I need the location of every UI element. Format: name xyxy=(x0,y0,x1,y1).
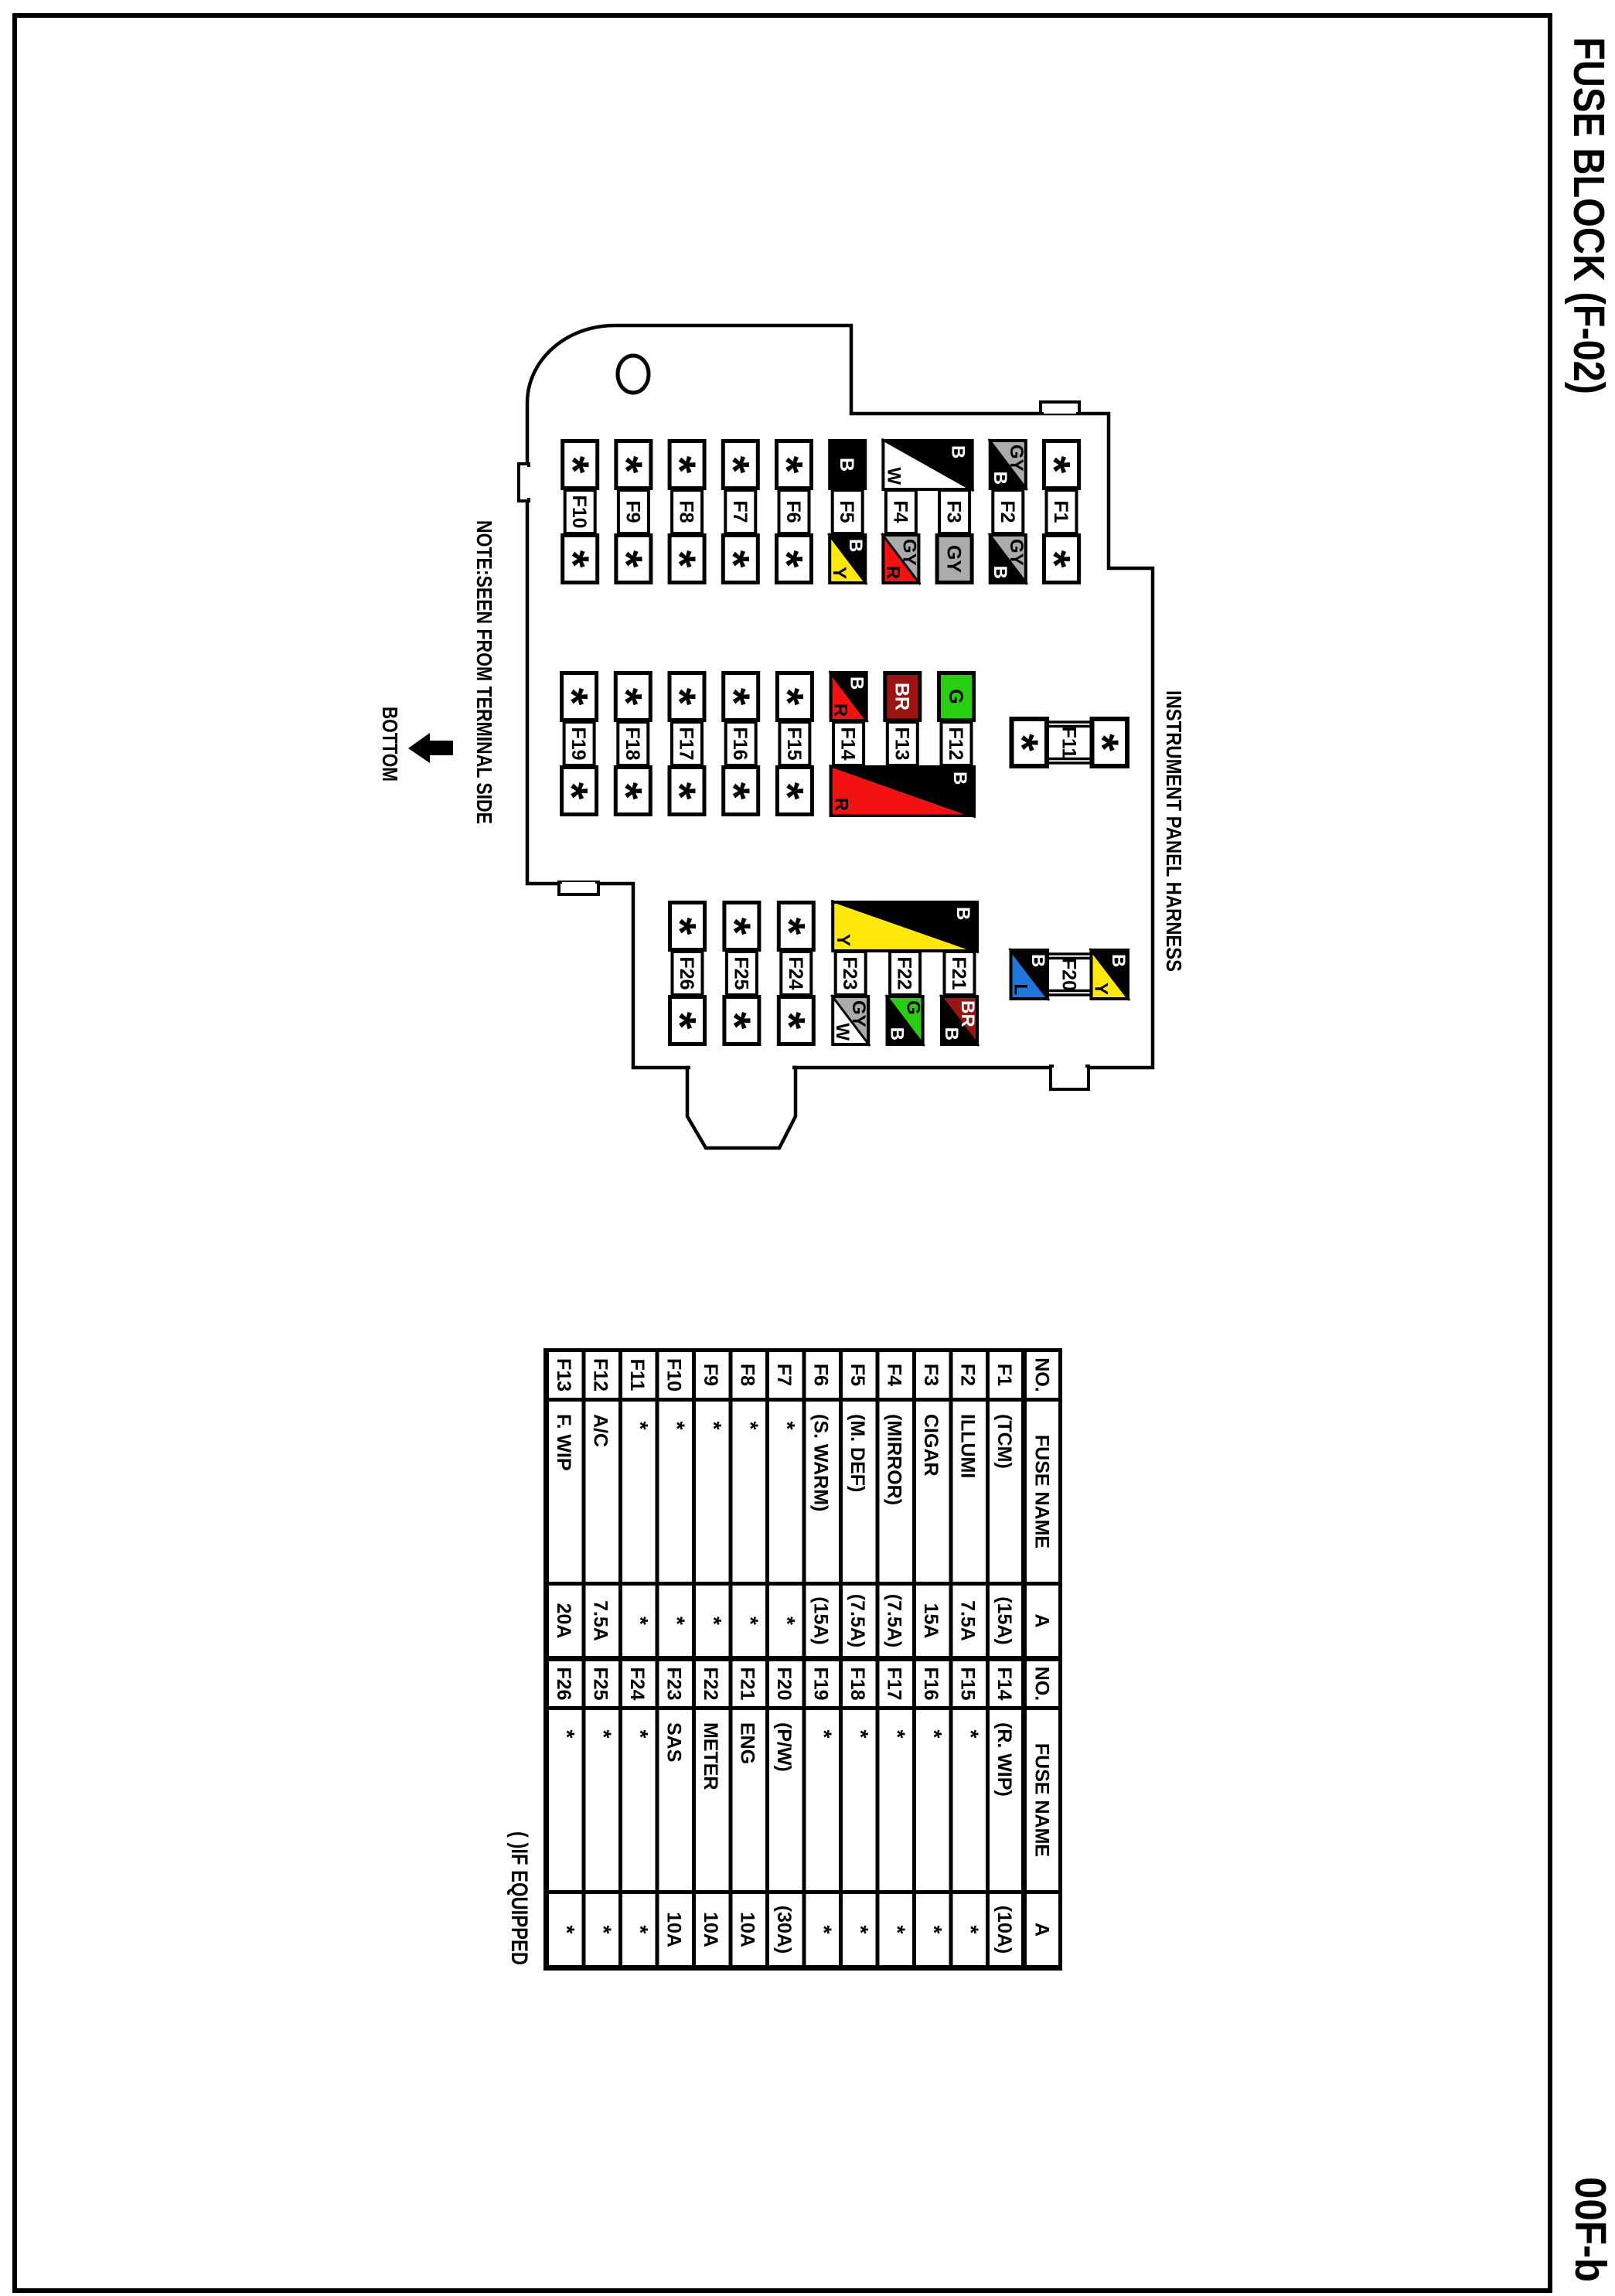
svg-text:F22: F22 xyxy=(700,1667,721,1700)
svg-text:F3: F3 xyxy=(943,500,965,523)
svg-text:*: * xyxy=(555,1926,579,1934)
svg-text:Y: Y xyxy=(829,567,850,579)
svg-text:G: G xyxy=(945,689,966,703)
svg-text:*: * xyxy=(762,550,812,568)
svg-text:*: * xyxy=(812,1926,836,1934)
svg-text:F25: F25 xyxy=(730,956,751,990)
svg-text:F23: F23 xyxy=(839,956,860,990)
svg-text:B: B xyxy=(887,1027,908,1041)
svg-text:F18: F18 xyxy=(622,727,643,760)
svg-text:*: * xyxy=(849,1730,873,1739)
svg-text:*: * xyxy=(775,1616,799,1625)
svg-text:*: * xyxy=(763,918,813,935)
svg-text:*: * xyxy=(654,456,704,474)
svg-text:*: * xyxy=(591,1730,615,1739)
svg-text:F21: F21 xyxy=(948,956,969,990)
svg-text:*: * xyxy=(708,782,758,800)
svg-text:F18: F18 xyxy=(847,1667,868,1700)
svg-text:(TCM): (TCM) xyxy=(993,1414,1015,1469)
svg-text:FUSE NAME: FUSE NAME xyxy=(1031,1743,1053,1857)
svg-text:(10A): (10A) xyxy=(993,1906,1015,1954)
svg-text:*: * xyxy=(629,1422,652,1430)
svg-text:(15A): (15A) xyxy=(810,1596,832,1645)
svg-text:F7: F7 xyxy=(729,500,751,523)
svg-text:F14: F14 xyxy=(993,1667,1015,1700)
svg-text:F17: F17 xyxy=(676,727,697,760)
svg-text:*: * xyxy=(665,1616,689,1625)
svg-text:GY: GY xyxy=(898,539,919,566)
svg-text:15A: 15A xyxy=(920,1603,942,1639)
svg-text:F8: F8 xyxy=(737,1364,758,1386)
svg-text:*: * xyxy=(709,918,759,935)
svg-text:*: * xyxy=(654,688,704,706)
svg-text:METER: METER xyxy=(700,1722,721,1790)
svg-text:*: * xyxy=(601,550,651,568)
svg-text:G: G xyxy=(903,1000,924,1015)
svg-text:GY: GY xyxy=(943,545,965,573)
svg-text:*: * xyxy=(702,1422,726,1430)
svg-text:*: * xyxy=(959,1926,983,1934)
svg-text:*: * xyxy=(997,734,1047,751)
svg-text:7.5A: 7.5A xyxy=(957,1600,979,1641)
svg-text:A: A xyxy=(1031,1613,1053,1627)
svg-text:F17: F17 xyxy=(884,1667,905,1700)
svg-text:*: * xyxy=(654,550,704,568)
svg-text:R: R xyxy=(882,566,903,579)
svg-text:F24: F24 xyxy=(626,1667,648,1700)
svg-text:B: B xyxy=(1108,954,1129,967)
svg-text:B: B xyxy=(1027,954,1048,967)
svg-text:*: * xyxy=(555,1730,579,1739)
svg-text:*: * xyxy=(762,782,813,800)
svg-text:*: * xyxy=(600,782,650,800)
svg-text:A/C: A/C xyxy=(590,1414,612,1447)
svg-text:20A: 20A xyxy=(553,1603,574,1639)
svg-text:F12: F12 xyxy=(945,727,966,760)
svg-text:F2: F2 xyxy=(997,500,1018,523)
svg-text:*: * xyxy=(547,550,598,568)
svg-text:GY: GY xyxy=(1006,445,1027,472)
svg-text:*: * xyxy=(629,1616,652,1625)
svg-text:W: W xyxy=(883,467,904,485)
svg-text:F9: F9 xyxy=(700,1364,721,1386)
svg-text:B: B xyxy=(845,539,866,552)
svg-text:F3: F3 xyxy=(920,1364,942,1386)
svg-text:7.5A: 7.5A xyxy=(590,1600,612,1641)
svg-text:SAS: SAS xyxy=(663,1722,685,1762)
svg-text:*: * xyxy=(763,1012,813,1030)
svg-text:F6: F6 xyxy=(782,500,804,523)
svg-text:B: B xyxy=(836,458,857,472)
svg-text:L: L xyxy=(1010,983,1031,995)
svg-text:F14: F14 xyxy=(837,727,859,760)
svg-text:*: * xyxy=(600,688,650,706)
svg-text:BR: BR xyxy=(957,1000,978,1027)
svg-text:10A: 10A xyxy=(663,1912,685,1947)
svg-text:*: * xyxy=(547,456,598,474)
svg-text:*: * xyxy=(665,1422,689,1430)
svg-text:NOTE:SEEN FROM TERMINAL SIDE: NOTE:SEEN FROM TERMINAL SIDE xyxy=(472,520,496,824)
svg-text:F20: F20 xyxy=(1058,958,1079,991)
svg-text:F8: F8 xyxy=(676,500,697,523)
svg-text:F12: F12 xyxy=(590,1358,612,1392)
svg-text:F13: F13 xyxy=(553,1358,574,1392)
svg-text:F16: F16 xyxy=(920,1667,942,1700)
svg-text:*: * xyxy=(1029,550,1079,568)
svg-text:*: * xyxy=(922,1926,946,1934)
svg-text:F5: F5 xyxy=(836,500,857,523)
svg-text:F5: F5 xyxy=(847,1364,868,1386)
svg-text:BOTTOM: BOTTOM xyxy=(378,707,402,782)
svg-text:*: * xyxy=(775,1422,799,1430)
svg-text:*: * xyxy=(959,1730,983,1739)
svg-text:*: * xyxy=(709,1012,759,1030)
svg-text:(S. WARM): (S. WARM) xyxy=(810,1414,832,1511)
svg-text:B: B xyxy=(941,1027,962,1041)
svg-text:*: * xyxy=(849,1926,873,1934)
svg-text:R: R xyxy=(830,703,851,717)
svg-text:(15A): (15A) xyxy=(993,1596,1015,1645)
svg-text:*: * xyxy=(885,1730,909,1739)
svg-text:R: R xyxy=(831,798,852,811)
svg-text:F15: F15 xyxy=(783,727,805,760)
svg-text:F6: F6 xyxy=(810,1364,832,1386)
svg-text:B: B xyxy=(990,566,1010,579)
svg-text:*: * xyxy=(708,688,758,706)
svg-text:(7.5A): (7.5A) xyxy=(847,1594,868,1647)
svg-text:F7: F7 xyxy=(773,1364,795,1386)
svg-text:INSTRUMENT PANEL HARNESS: INSTRUMENT PANEL HARNESS xyxy=(1162,690,1186,972)
svg-text:(30A): (30A) xyxy=(773,1906,795,1954)
svg-text:F4: F4 xyxy=(884,1364,905,1386)
svg-text:*: * xyxy=(1077,734,1127,751)
svg-text:*: * xyxy=(1029,456,1079,474)
svg-text:*: * xyxy=(738,1422,762,1430)
svg-text:B: B xyxy=(948,445,969,458)
svg-text:F20: F20 xyxy=(773,1667,795,1700)
svg-text:*: * xyxy=(885,1926,909,1934)
svg-text:B: B xyxy=(949,772,970,785)
svg-text:F. WIP: F. WIP xyxy=(553,1414,574,1471)
svg-text:*: * xyxy=(629,1926,652,1934)
svg-text:F10: F10 xyxy=(568,495,590,528)
svg-text:F1: F1 xyxy=(993,1364,1015,1386)
svg-text:F9: F9 xyxy=(622,500,643,523)
svg-text:NO.: NO. xyxy=(1031,1358,1053,1392)
svg-text:ENG: ENG xyxy=(737,1722,758,1764)
svg-text:F22: F22 xyxy=(894,956,915,990)
svg-text:*: * xyxy=(707,456,758,474)
svg-text:Y: Y xyxy=(1091,983,1112,995)
svg-text:F15: F15 xyxy=(957,1667,979,1700)
svg-text:10A: 10A xyxy=(737,1912,758,1947)
svg-text:*: * xyxy=(922,1730,946,1739)
svg-text:*: * xyxy=(738,1616,762,1625)
svg-text:F19: F19 xyxy=(810,1667,832,1700)
svg-text:W: W xyxy=(832,1023,853,1041)
svg-text:FUSE BLOCK (F-02): FUSE BLOCK (F-02) xyxy=(1564,37,1613,394)
svg-text:*: * xyxy=(547,688,597,706)
svg-text:BR: BR xyxy=(891,683,912,710)
svg-text:10A: 10A xyxy=(700,1912,721,1947)
svg-text:F24: F24 xyxy=(785,956,806,990)
svg-text:F13: F13 xyxy=(891,727,912,760)
svg-text:*: * xyxy=(601,456,651,474)
svg-text:(P/W): (P/W) xyxy=(773,1722,795,1772)
svg-text:F21: F21 xyxy=(737,1667,758,1700)
svg-text:Y: Y xyxy=(833,934,853,946)
svg-text:F10: F10 xyxy=(663,1358,685,1392)
svg-text:F11: F11 xyxy=(1058,727,1079,759)
svg-text:F2: F2 xyxy=(957,1364,979,1386)
svg-text:F16: F16 xyxy=(729,727,751,760)
svg-text:(R. WIP): (R. WIP) xyxy=(993,1722,1015,1797)
svg-text:F1: F1 xyxy=(1050,500,1072,523)
svg-text:FUSE NAME: FUSE NAME xyxy=(1031,1435,1053,1548)
svg-text:ILLUMI: ILLUMI xyxy=(957,1414,979,1478)
svg-text:(M. DEF): (M. DEF) xyxy=(847,1414,868,1492)
svg-text:B: B xyxy=(847,676,867,690)
svg-text:GY: GY xyxy=(1006,539,1027,566)
svg-text:F26: F26 xyxy=(553,1667,574,1700)
svg-text:*: * xyxy=(655,1012,705,1030)
svg-text:( )IF EQUIPPED: ( )IF EQUIPPED xyxy=(506,1831,532,1965)
svg-text:*: * xyxy=(707,550,758,568)
svg-text:F19: F19 xyxy=(567,727,589,760)
svg-text:*: * xyxy=(702,1616,726,1625)
svg-text:*: * xyxy=(629,1730,652,1739)
svg-text:NO.: NO. xyxy=(1031,1667,1053,1701)
svg-text:00F-b: 00F-b xyxy=(1566,2177,1615,2282)
svg-text:*: * xyxy=(762,456,812,474)
svg-text:(7.5A): (7.5A) xyxy=(884,1594,905,1647)
svg-text:B: B xyxy=(990,472,1010,485)
svg-text:F23: F23 xyxy=(663,1667,685,1700)
svg-text:F11: F11 xyxy=(626,1359,648,1392)
svg-text:*: * xyxy=(812,1730,836,1739)
svg-text:F26: F26 xyxy=(676,956,697,990)
svg-text:B: B xyxy=(952,907,973,920)
svg-text:*: * xyxy=(654,782,704,800)
svg-text:CIGAR: CIGAR xyxy=(920,1414,942,1477)
svg-text:F4: F4 xyxy=(889,500,911,523)
svg-text:(MIRROR): (MIRROR) xyxy=(884,1414,905,1505)
svg-text:*: * xyxy=(591,1926,615,1934)
svg-text:*: * xyxy=(547,782,597,800)
svg-text:A: A xyxy=(1031,1923,1053,1937)
svg-text:*: * xyxy=(655,918,705,935)
svg-text:F25: F25 xyxy=(590,1667,612,1700)
svg-text:*: * xyxy=(762,688,813,706)
